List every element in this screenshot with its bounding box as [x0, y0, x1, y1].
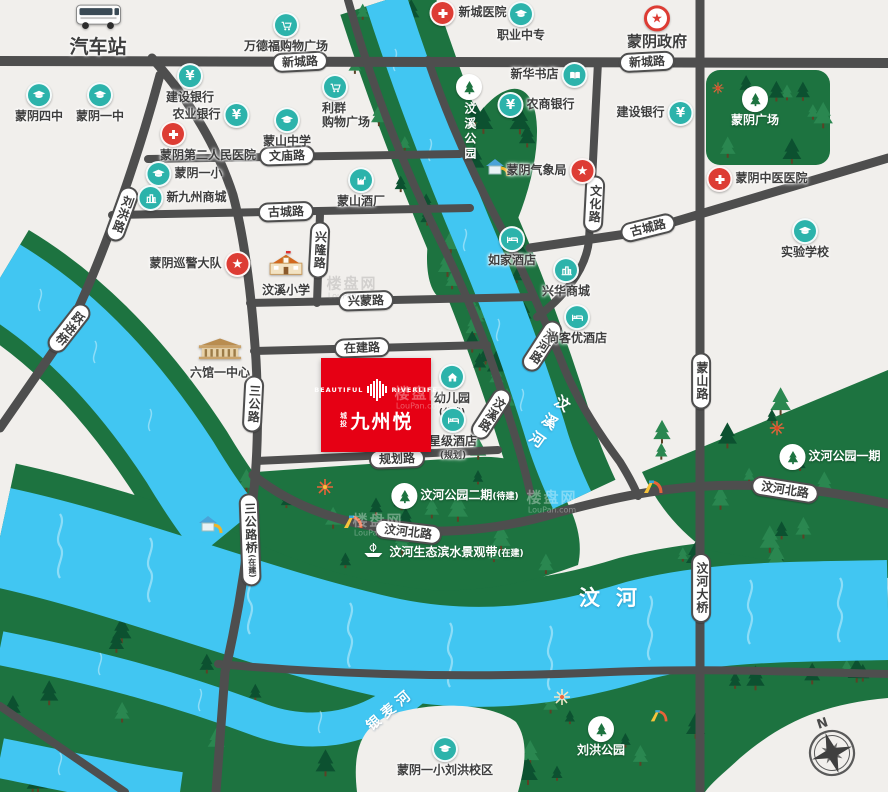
bed-icon [440, 407, 466, 433]
poi-label: 实验学校 [781, 246, 829, 260]
road-label-xinglong-rd: 兴隆路 [308, 221, 331, 279]
poi-wenhe-park-2: 汶河公园二期(待建) [391, 483, 518, 509]
poi-label: 蒙阴气象局 [506, 164, 566, 178]
poi-wenxi-park: 汶溪公园 [456, 74, 482, 162]
bed-icon [499, 226, 525, 252]
poi-label: 蒙阴四中 [15, 110, 63, 124]
yen-icon: ¥ [497, 92, 523, 118]
poi-star-hotel: 星级酒店(规划) [429, 407, 477, 461]
poi-xunjing-dadui: ★蒙阴巡警大队 [149, 251, 250, 277]
poi-mengshan-jiuchang: 蒙山酒厂 [337, 167, 385, 209]
poi-mengyin-square: 蒙阴广场 [731, 86, 779, 128]
bed-icon [564, 304, 590, 330]
star-icon: ★ [644, 5, 670, 31]
poi-label: 新九州商城 [166, 191, 226, 205]
cap-icon [145, 161, 171, 187]
poi-wandefu-plaza: 万德福购物广场 [244, 12, 328, 54]
poi-xincheng-hospital: 新城医院 [429, 0, 506, 26]
poi-mengshan-middle: 蒙山中学 [263, 107, 311, 149]
road-label-mengshan-rd: 蒙山路 [691, 353, 711, 410]
watermark: 楼盘网LouPan.com [394, 385, 445, 410]
yen-icon: ¥ [177, 63, 203, 89]
poi-xinghua-mall: 兴华商城 [542, 257, 590, 299]
watermark-sub: LouPan.com [394, 402, 445, 411]
bus-icon [74, 1, 122, 35]
tree-icon [779, 444, 805, 470]
poi-tcm-hospital: 蒙阴中医医院 [706, 166, 807, 192]
poi-mengyin-1st: 蒙阴一中 [76, 82, 124, 124]
project-name-prefix: 城投 [338, 412, 348, 428]
poi-jianshe-bank-e: ¥建设银行 [616, 100, 693, 126]
poi-label: 汶河公园一期 [808, 450, 880, 464]
tree-icon [588, 716, 614, 742]
watermark-title: 楼盘网 [326, 275, 377, 292]
poi-label: 汶溪小学 [262, 284, 310, 298]
poi-nongshang-bank: ¥农商银行 [497, 92, 574, 118]
watermark-sub: LouPan.com [526, 506, 577, 515]
poi-label: 农业银行 [172, 108, 220, 122]
cross-icon [160, 121, 186, 147]
poi-label: 蒙阴中医医院 [735, 172, 807, 186]
tree-icon [391, 483, 417, 509]
cap-icon [87, 82, 113, 108]
poi-shangkeyou-hotel: 尚客优酒店 [547, 304, 607, 346]
brand-left: BEAUTIFUL [314, 386, 363, 394]
project-logo-icon [367, 377, 387, 403]
cart-icon [322, 74, 348, 100]
poi-label: 蒙阴广场 [731, 114, 779, 128]
poi-label: 蒙山中学 [263, 135, 311, 149]
watermark-title: 楼盘网 [394, 385, 445, 402]
compass: N [799, 710, 859, 781]
poi-liuhong-park: 刘洪公园 [577, 716, 625, 758]
poi-bus-station: 汽车站 [69, 1, 126, 59]
cap-icon [792, 218, 818, 244]
poi-label: 蒙阴政府 [627, 33, 687, 50]
poi-xinjiuzhou-mall: 新九州商城 [137, 185, 226, 211]
poi-wenhe-park-1: 汶河公园一期 [779, 444, 880, 470]
star-icon: ★ [225, 251, 251, 277]
poi-label: 六馆一中心 [190, 367, 250, 381]
poi-sublabel: (规划) [440, 451, 466, 461]
road-label-wenhe-bridge: 汶河大桥 [691, 553, 711, 623]
cross-icon [429, 0, 455, 26]
watermark-sub: LouPan.com [352, 529, 403, 538]
poi-liqun-plaza: 利群 购物广场 [322, 74, 370, 130]
road-label-zaijian-rd: 在建路 [334, 337, 391, 359]
river-label-wen-river: 汶河 [579, 582, 653, 612]
watermark-sub: LouPan.com [326, 292, 377, 301]
poi-mengyin-yixiao: 蒙阴一小 [145, 161, 222, 187]
svg-text:N: N [815, 715, 830, 733]
poi-label: 职业中专 [497, 29, 545, 43]
poi-label: 农商银行 [526, 98, 574, 112]
poi-sublabel: (在建) [497, 549, 523, 559]
poi-sublabel: (待建) [492, 492, 518, 502]
road-label-xincheng-rd-e: 新城路 [618, 50, 675, 73]
poi-shiyan-school: 实验学校 [781, 218, 829, 260]
poi-label: 尚客优酒店 [547, 332, 607, 346]
star-icon: ★ [570, 158, 596, 184]
poi-rujia-hotel: 如家酒店 [488, 226, 536, 268]
poi-mengyin-4th: 蒙阴四中 [15, 82, 63, 124]
poi-liuhong-campus: 蒙阴一小刘洪校区 [397, 736, 493, 778]
poi-label: 汶河公园二期(待建) [420, 489, 518, 503]
watermark-title: 楼盘网 [526, 489, 577, 506]
poi-wenxi-school: 汶溪小学 [262, 250, 310, 298]
road-label-sub: (在建) [247, 554, 257, 578]
poi-label: 建设银行 [616, 106, 664, 120]
poi-label: 万德福购物广场 [244, 40, 328, 54]
poi-label: 蒙阴一小 [174, 167, 222, 181]
watermark-title: 楼盘网 [352, 512, 403, 529]
mall-icon [553, 257, 579, 283]
watermark: 楼盘网LouPan.com [526, 489, 577, 514]
tree-icon [742, 86, 768, 112]
poi-label: 如家酒店 [488, 254, 536, 268]
poi-label: 蒙阴一小刘洪校区 [397, 764, 493, 778]
poi-jianshe-bank-w: ¥建设银行 [166, 63, 214, 105]
watermark: 楼盘网LouPan.com [352, 512, 403, 537]
boat-icon [360, 542, 386, 564]
poi-liuguan-center: 六馆一中心 [190, 338, 250, 381]
mall-icon [137, 185, 163, 211]
museum-icon [197, 338, 243, 365]
poi-xinhua-bookstore: 新华书店 [510, 62, 587, 88]
poi-label: 星级酒店 [429, 435, 477, 449]
poi-label: 蒙阴巡警大队 [149, 257, 221, 271]
road-xincheng [0, 61, 888, 63]
poi-label: 新华书店 [510, 68, 558, 82]
poi-renmin-hospital: 蒙阴第二人民医院 [160, 121, 256, 163]
poi-label: 汽车站 [69, 37, 126, 59]
road-label-sangong-rd: 三公路 [242, 375, 265, 433]
schoolhouse-icon [267, 250, 305, 282]
poi-label: 蒙阴一中 [76, 110, 124, 124]
poi-label: 刘洪公园 [577, 744, 625, 758]
cart-icon [273, 12, 299, 38]
poi-label: 蒙山酒厂 [337, 195, 385, 209]
cap-icon [274, 107, 300, 133]
poi-mengyin-gov: ★蒙阴政府 [627, 5, 687, 50]
cap-icon [26, 82, 52, 108]
poi-label: 利群 购物广场 [322, 102, 370, 130]
road-label-sangong-bridge: 三公路桥(在建) [238, 493, 261, 587]
poi-label: 汶河生态滨水景观带(在建) [389, 546, 523, 560]
cross-icon [706, 166, 732, 192]
poi-scenic-belt: 汶河生态滨水景观带(在建) [360, 542, 523, 564]
cap-icon [432, 736, 458, 762]
road-label-gucheng-rd-w: 古城路 [258, 201, 315, 223]
watermark: 楼盘网LouPan.com [326, 275, 377, 300]
tree-icon [456, 74, 482, 100]
yen-icon: ¥ [668, 100, 694, 126]
poi-label: 兴华商城 [542, 285, 590, 299]
cap-icon [508, 1, 534, 27]
poi-label: 汶溪公园 [462, 102, 476, 162]
poi-weather-bureau: ★蒙阴气象局 [506, 158, 595, 184]
poi-zhiye-zhongzhuan: 职业中专 [497, 1, 545, 43]
factory-icon [348, 167, 374, 193]
location-map: N 汽车站万德福购物广场新城医院职业中专★蒙阴政府¥建设银行¥农业银行蒙阴第二人… [0, 0, 888, 792]
book-icon [562, 62, 588, 88]
